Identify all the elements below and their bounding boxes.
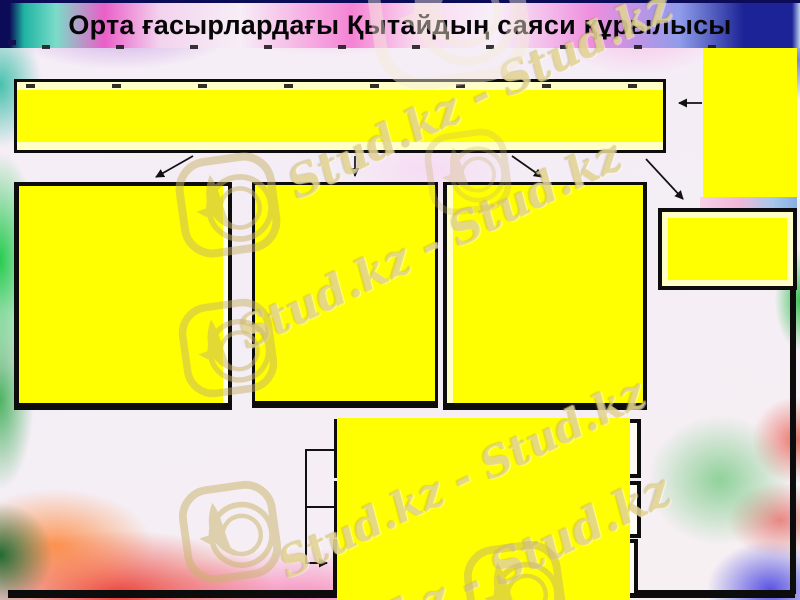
clipped-text-remnants-top <box>42 45 732 49</box>
node-right-center-box <box>443 182 647 410</box>
clipped-text-remnants-inside-box <box>26 84 644 88</box>
node-top-wide-box <box>14 79 666 153</box>
stud-kz-logo-watermark <box>167 469 293 595</box>
node-left-box <box>14 182 232 410</box>
right-gradient-band <box>700 197 797 208</box>
page-title: Орта ғасырлардағы Қытайдың саяси құрылыс… <box>0 3 800 41</box>
node-bottom-overlay-box <box>337 418 630 600</box>
slide-frame-right <box>790 288 796 594</box>
presentation-slide: Орта ғасырлардағы Қытайдың саяси құрылыс… <box>0 0 800 600</box>
title-edge-mark <box>8 40 16 45</box>
node-top-right-box <box>703 48 797 197</box>
node-center-box <box>252 182 438 408</box>
title-bar: Орта ғасырлардағы Қытайдың саяси құрылыс… <box>0 0 800 48</box>
node-side-small-box <box>658 208 797 290</box>
